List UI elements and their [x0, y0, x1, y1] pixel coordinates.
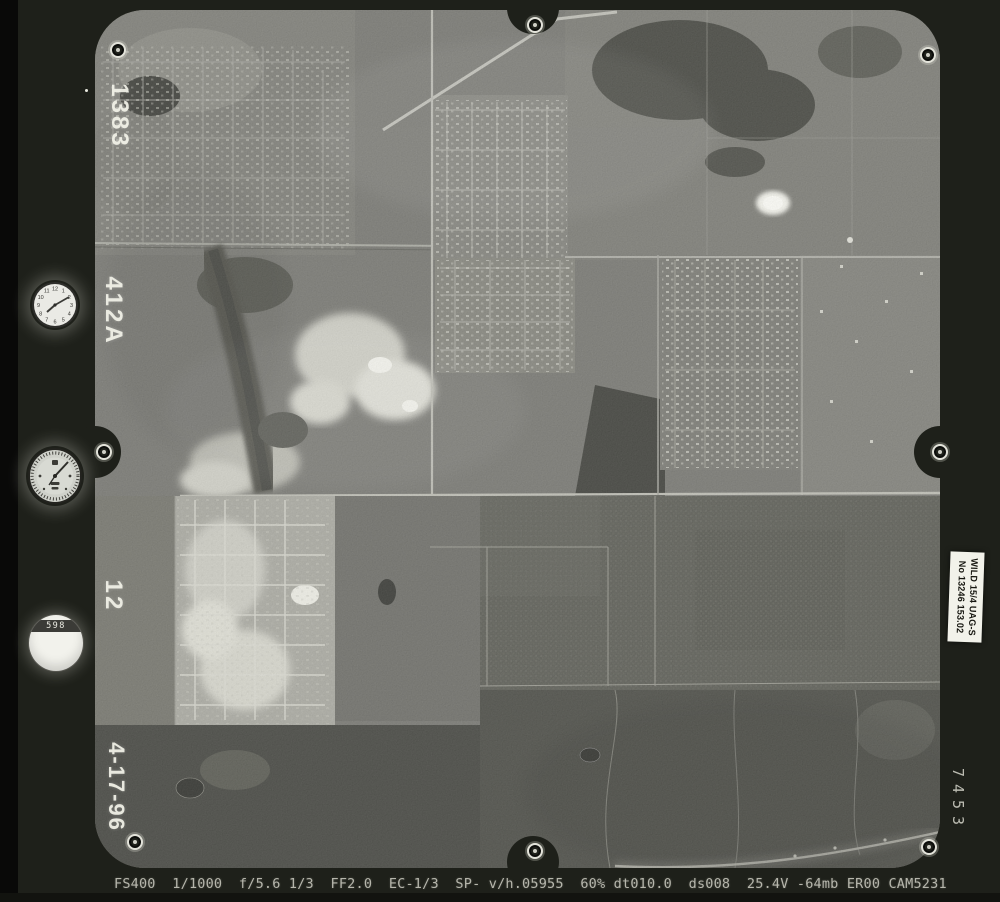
corner-fiducial-mark-icon [921, 839, 937, 855]
camera-info-label: WILD 15/4 UAG-S No 13246 153.02 [947, 551, 984, 642]
fiducial-mark-icon [527, 843, 543, 859]
altimeter-instrument [26, 446, 84, 506]
svg-text:10: 10 [38, 295, 44, 301]
clock-instrument: 121234567891011 [30, 280, 80, 330]
frame-counter: 598 [28, 614, 84, 672]
margin-label-frame-number: 7453 [949, 768, 967, 832]
aerial-photo-image [95, 10, 940, 868]
fiducial-mark-icon [527, 17, 543, 33]
frame-counter-value: 598 [46, 621, 66, 631]
frame-counter-window: 598 [29, 620, 83, 632]
corner-fiducial-mark-icon [127, 834, 143, 850]
svg-text:8: 8 [39, 311, 42, 317]
fiducial-mark-icon [932, 444, 948, 460]
film-grain-texture [95, 10, 940, 868]
svg-text:5: 5 [62, 317, 65, 323]
corner-fiducial-mark-icon [110, 42, 126, 58]
camera-label-line2: No 13246 153.02 [953, 560, 967, 633]
camera-data-strip: FS400 1/1000 f/5.6 1/3 FF2.0 EC-1/3 SP- … [114, 876, 947, 892]
svg-text:3: 3 [70, 303, 73, 309]
svg-text:9: 9 [37, 303, 40, 309]
svg-text:11: 11 [44, 289, 50, 295]
film-bottom-band [0, 893, 1000, 902]
dust-speck [85, 89, 88, 92]
margin-label-date: 4-17-96 [103, 742, 129, 832]
aerial-photo-frame [95, 10, 940, 868]
film-edge-black-strip [0, 0, 18, 902]
film-scan-stage: 1383 412A 12 4-17-96 7453 WILD 15/4 UAG-… [0, 0, 1000, 902]
svg-text:7: 7 [45, 317, 48, 323]
svg-text:4: 4 [68, 311, 71, 317]
svg-text:1: 1 [62, 289, 65, 295]
margin-label-strip-number: 12 [99, 580, 127, 613]
margin-label-area-code: 412A [99, 276, 127, 345]
corner-fiducial-mark-icon [920, 47, 936, 63]
svg-text:6: 6 [53, 320, 56, 326]
fiducial-mark-icon [96, 444, 112, 460]
margin-label-roll: 1383 [105, 83, 133, 148]
svg-text:12: 12 [52, 287, 58, 293]
